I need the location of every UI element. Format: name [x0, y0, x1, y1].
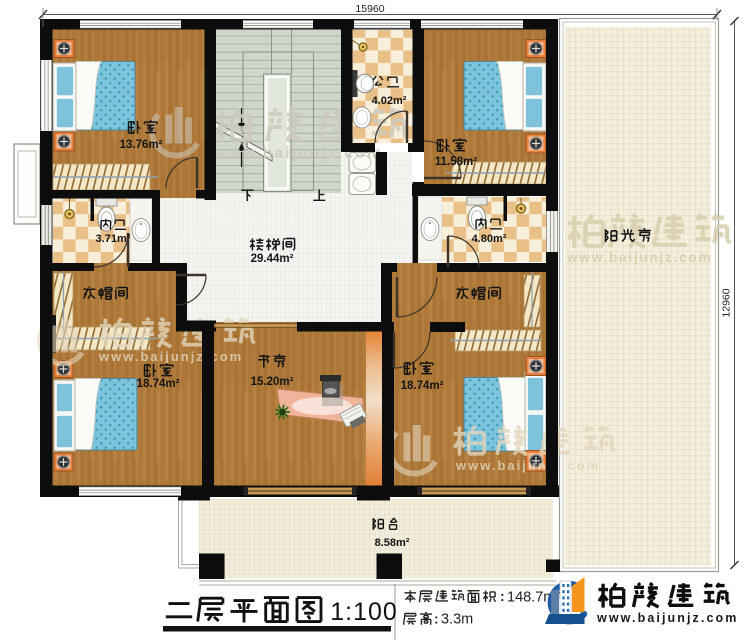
svg-text:15.20m²: 15.20m²: [251, 376, 294, 388]
svg-text:29.44m²: 29.44m²: [251, 253, 294, 265]
svg-text:www.baijunjz.com: www.baijunjz.com: [455, 458, 600, 473]
svg-text:18.74m²: 18.74m²: [401, 380, 444, 392]
svg-text:8.58m²: 8.58m²: [375, 537, 410, 549]
svg-text::: :: [500, 588, 505, 604]
svg-text:18.74m²: 18.74m²: [137, 378, 180, 390]
svg-text:13.76m²: 13.76m²: [120, 139, 163, 151]
svg-text:12960: 12960: [721, 288, 733, 317]
svg-text:3.71m²: 3.71m²: [96, 233, 131, 245]
svg-text:1:100: 1:100: [330, 598, 398, 626]
svg-text::: :: [434, 611, 439, 627]
svg-text:www.baijunjz.com: www.baijunjz.com: [566, 250, 712, 265]
svg-text:4.80m²: 4.80m²: [472, 233, 507, 245]
svg-text:11.58m²: 11.58m²: [435, 156, 477, 168]
svg-text:4.02m²: 4.02m²: [372, 95, 407, 107]
svg-text:15960: 15960: [355, 3, 384, 15]
svg-text:3.3m: 3.3m: [441, 612, 473, 628]
svg-text:www.baijunjz.com: www.baijunjz.com: [596, 611, 738, 625]
svg-text:www.baijunjz.com: www.baijunjz.com: [98, 349, 243, 364]
